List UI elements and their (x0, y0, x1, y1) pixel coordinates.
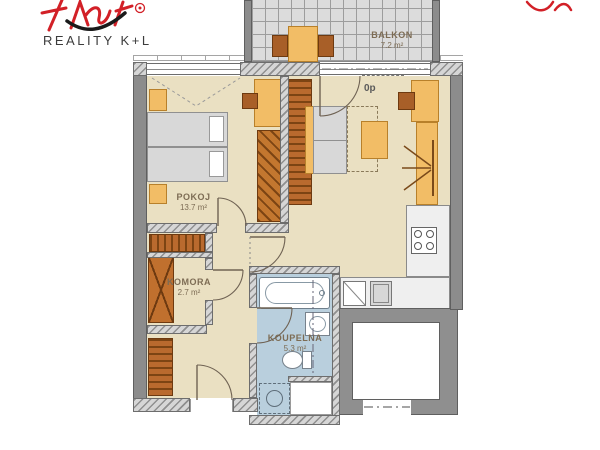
bathtub-basin (265, 282, 324, 304)
bottom-wall-right (233, 398, 258, 412)
shaft-opening (363, 400, 411, 415)
exterior-wall-right (450, 62, 463, 310)
top-wall-middle (240, 62, 320, 76)
balcony-table (288, 26, 318, 62)
top-wall-right (430, 62, 463, 76)
room-label-pokoj: POKOJ 13.7 m² (156, 192, 231, 213)
top-wall-left (133, 62, 147, 76)
bathroom-inner-wall (288, 376, 332, 382)
balcony-left-wall (244, 0, 252, 62)
upper-balcony-ledge-left (133, 55, 244, 61)
pokoj-name: POKOJ (156, 192, 231, 203)
coffee-table (361, 121, 388, 159)
bathroom-sink-basin (309, 316, 326, 332)
closet-niche-right-wall (205, 233, 213, 252)
dining-table (416, 122, 438, 205)
balkon-area: 7.2 m² (352, 41, 432, 51)
bathroom-left-wall-b (249, 343, 257, 398)
shaft-interior (352, 322, 440, 400)
upper-balcony-ledge-right (440, 55, 463, 61)
balcony-chair-right (318, 35, 334, 57)
floor-level-label: 0p (364, 83, 390, 94)
komora-name: KOMORA (158, 277, 220, 288)
pillow-2 (209, 151, 224, 177)
realty-logo-signature (35, 0, 205, 32)
bathroom-bottom-wall (249, 415, 340, 425)
bathroom-left-wall-a (249, 274, 257, 308)
storage-right-wall-a (205, 258, 213, 270)
kitchen-sink (343, 281, 366, 306)
koupelna-area: 5.3 m² (258, 344, 332, 354)
bottom-wall-left (133, 398, 190, 412)
bathroom-top-wall (249, 266, 340, 274)
stool (242, 93, 258, 109)
washing-machine-drum (266, 390, 283, 407)
nightstand-top (149, 89, 167, 111)
pokoj-area: 13.7 m² (156, 203, 231, 213)
bathroom-niche (290, 382, 332, 415)
storage-bottom-wall (147, 325, 207, 334)
balkon-name: BALKON (352, 30, 432, 41)
stove-burner-1 (414, 230, 422, 238)
closet-niche-bottom-wall (147, 252, 213, 258)
bedroom-bottom-wall-b (245, 223, 289, 233)
room-label-koupelna: KOUPELNA 5.3 m² (258, 333, 332, 354)
desk (411, 80, 439, 122)
room-label-komora: KOMORA 2.7 m² (158, 277, 220, 298)
stove-burner-3 (414, 242, 422, 250)
closet-niche-wardrobe (149, 234, 205, 252)
storage-right-wall-b (205, 300, 213, 325)
balcony-right-wall (432, 0, 440, 62)
hall-wardrobe (148, 338, 173, 396)
sofa-seat-divider (314, 140, 346, 141)
exterior-wall-left (133, 62, 147, 412)
komora-area: 2.7 m² (158, 288, 220, 298)
balcony-door-window (320, 63, 430, 75)
bedroom-bottom-wall-a (147, 223, 217, 233)
entrance-opening (190, 399, 233, 412)
realty-logo-text: REALITY K+L (43, 33, 152, 48)
pillow-1 (209, 116, 224, 142)
dishwasher-inner (373, 284, 389, 303)
desk-chair (398, 92, 415, 110)
bathroom-right-wall (332, 274, 340, 425)
bedroom-window (147, 63, 240, 75)
koupelna-name: KOUPELNA (258, 333, 332, 344)
stove-burner-4 (426, 242, 434, 250)
balcony-chair-left (272, 35, 288, 57)
bedroom-right-wall (280, 76, 289, 223)
corner-scribble (523, 0, 573, 16)
room-label-balkon: BALKON 7.2 m² (352, 30, 432, 51)
floorplan: BALKON 7.2 m² POKOJ 13.7 m² KOMORA 2.7 m… (0, 0, 600, 450)
stove-burner-2 (426, 230, 434, 238)
